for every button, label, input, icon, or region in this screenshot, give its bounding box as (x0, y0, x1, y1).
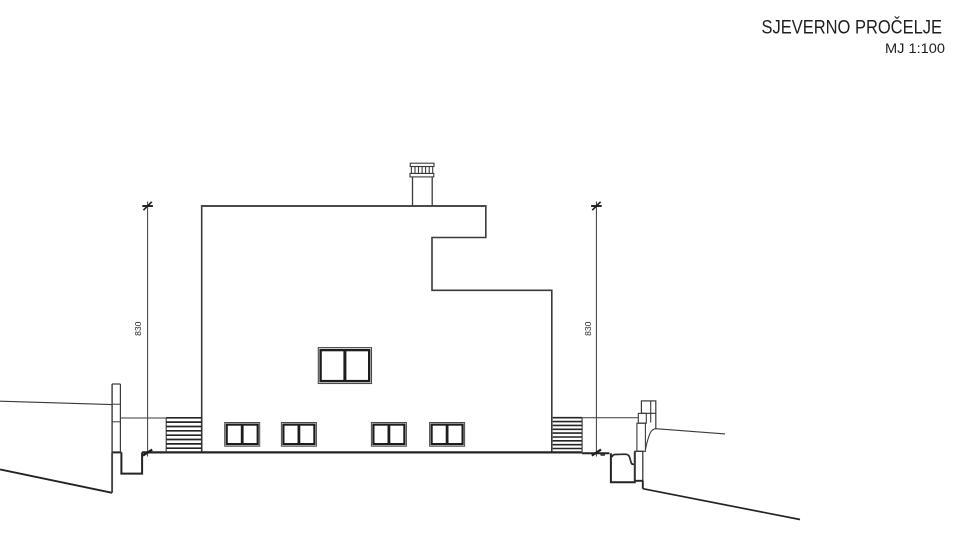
svg-text:SJEVERNO PROČELJE: SJEVERNO PROČELJE (762, 17, 943, 39)
svg-text:830: 830 (133, 321, 143, 336)
svg-text:830: 830 (583, 321, 593, 336)
svg-text:MJ 1:100: MJ 1:100 (885, 41, 945, 56)
